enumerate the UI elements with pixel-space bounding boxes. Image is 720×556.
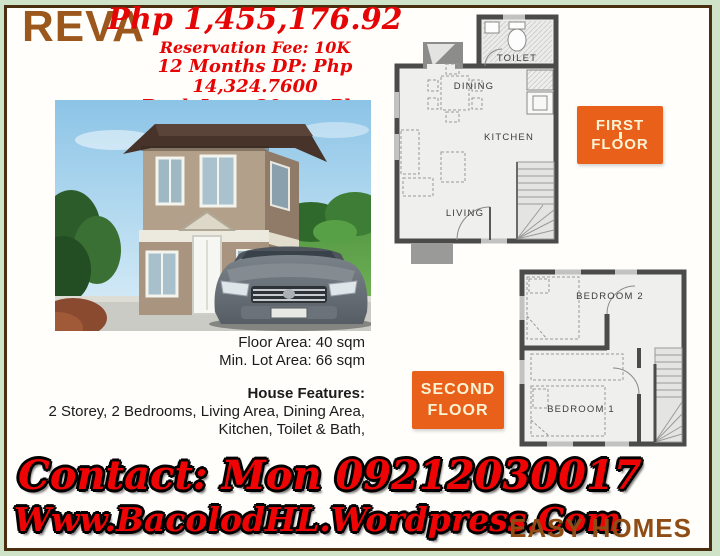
stairs: [655, 348, 682, 442]
second-floor-plan: BEDROOM 2 BEDROOM 1: [519, 268, 689, 450]
brand-name: EASY HOMES: [509, 513, 692, 544]
reservation-fee: Reservation Fee: 10K: [105, 38, 405, 57]
side-window: [271, 162, 289, 210]
features-line2: Kitchen, Toilet & Bath,: [35, 421, 365, 439]
stairs: [517, 162, 554, 239]
room-label-bedroom2: BEDROOM 2: [576, 291, 644, 302]
lower-window-left: [147, 252, 177, 296]
room-label-bedroom1: BEDROOM 1: [547, 404, 615, 415]
first-floor-badge: FIRST FLOOR: [577, 106, 663, 164]
second-floor-badge-line2: FLOOR: [428, 402, 489, 419]
porch: [411, 243, 453, 264]
specs-block: Floor Area: 40 sqm Min. Lot Area: 66 sqm…: [35, 334, 365, 439]
first-floor-plan: TOILET DINING KITCHEN LIVING: [393, 14, 560, 266]
room-label-dining: DINING: [454, 81, 494, 92]
kitchen-counter: [527, 70, 553, 114]
second-floor-badge: SECOND FLOOR: [412, 371, 504, 429]
contact-phone: Contact: Mon 09212030017: [18, 452, 642, 499]
flyer-canvas: REVA Php 1,455,176.92 Reservation Fee: 1…: [0, 0, 720, 556]
room-label-living: LIVING: [446, 208, 484, 219]
room-label-toilet: TOILET: [497, 53, 537, 64]
upper-window-right: [201, 156, 235, 206]
room-label-kitchen: KITCHEN: [484, 132, 534, 143]
house-photo: [55, 100, 371, 331]
floor-area: Floor Area: 40 sqm: [35, 334, 365, 352]
second-floor-badge-line1: SECOND: [421, 381, 495, 398]
monthly-downpayment: 12 Months DP: Php 14,324.7600: [105, 57, 405, 97]
features-line1: 2 Storey, 2 Bedrooms, Living Area, Dinin…: [35, 403, 365, 421]
features-title: House Features:: [35, 385, 365, 403]
lot-area: Min. Lot Area: 66 sqm: [35, 352, 365, 370]
first-floor-badge-line1: FIRST: [596, 117, 644, 134]
price-total: Php 1,455,176.92: [105, 2, 405, 38]
upper-window-left: [157, 158, 183, 204]
first-floor-badge-line2: FLOOR: [591, 136, 649, 153]
